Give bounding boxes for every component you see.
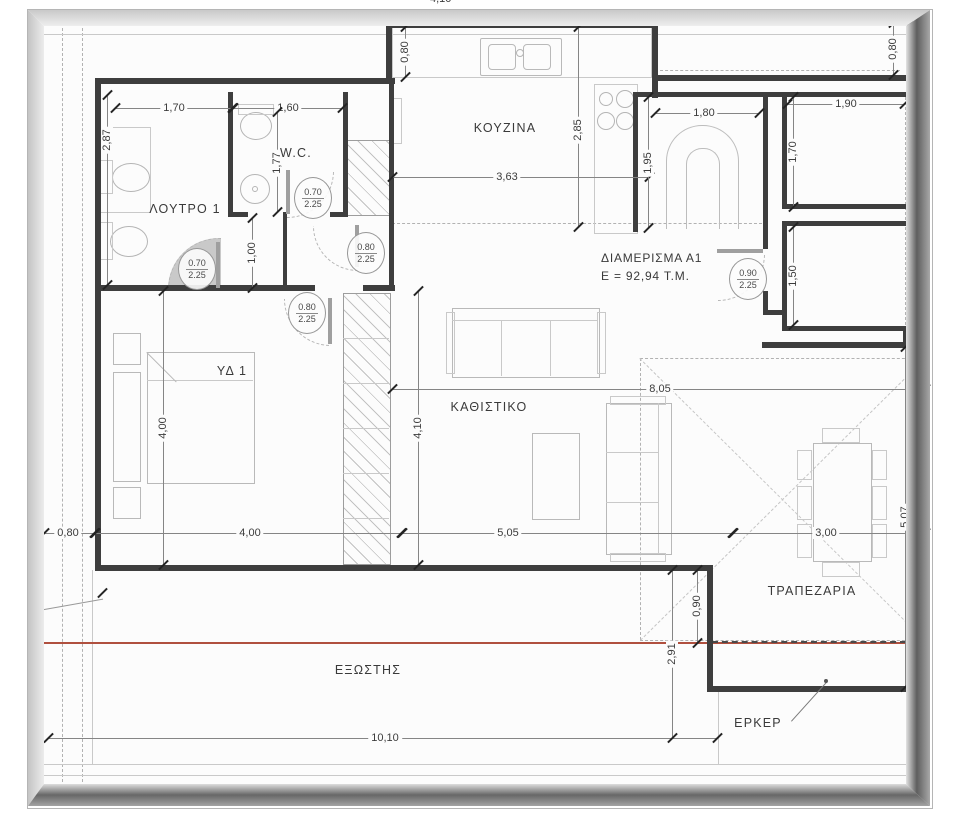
dimension-text: 4,10 <box>430 0 451 5</box>
dimension-text-partial: 4,10 <box>430 0 474 6</box>
frame-edge <box>27 9 933 809</box>
floor-plan: 0.70 2.25 0.70 2.25 0.80 2.25 0.80 2.25 … <box>0 0 960 824</box>
